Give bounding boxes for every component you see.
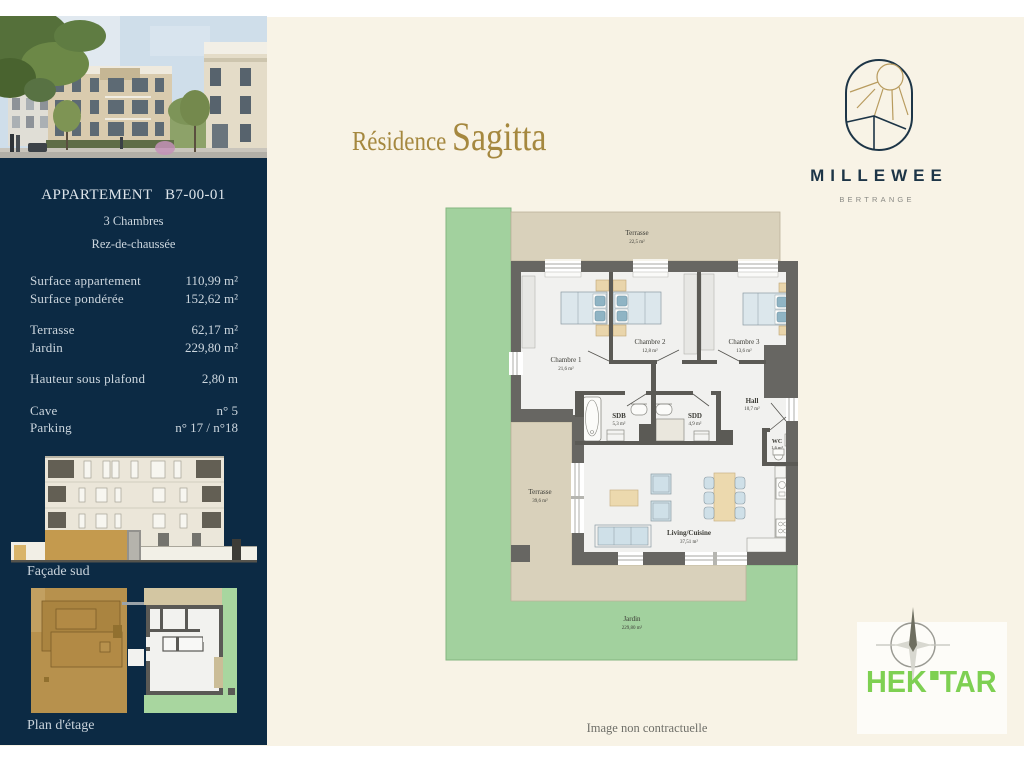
svg-text:21,6 m²: 21,6 m² xyxy=(558,366,574,372)
svg-text:13,6 m²: 13,6 m² xyxy=(736,348,752,354)
svg-text:SDD: SDD xyxy=(688,412,702,420)
svg-text:HEK: HEK xyxy=(866,665,927,699)
svg-text:Jardin: Jardin xyxy=(623,615,641,623)
svg-text:Living/Cuisine: Living/Cuisine xyxy=(667,529,711,537)
svg-text:5,3 m²: 5,3 m² xyxy=(613,421,626,427)
svg-text:BERTRANGE: BERTRANGE xyxy=(839,195,914,204)
svg-text:Chambre 1: Chambre 1 xyxy=(551,356,582,364)
svg-text:MILLEWEE: MILLEWEE xyxy=(810,166,948,185)
svg-text:Hall: Hall xyxy=(746,397,759,405)
svg-text:39,6 m²: 39,6 m² xyxy=(532,498,548,504)
svg-text:Chambre 2: Chambre 2 xyxy=(635,338,666,346)
svg-text:Chambre 3: Chambre 3 xyxy=(729,338,760,346)
svg-text:TAR: TAR xyxy=(939,665,996,699)
svg-text:Terrasse: Terrasse xyxy=(625,229,648,237)
svg-text:12,8 m²: 12,8 m² xyxy=(642,348,658,354)
svg-text:10,7 m²: 10,7 m² xyxy=(744,406,760,412)
svg-text:SDB: SDB xyxy=(612,412,626,420)
svg-text:229,80 m²: 229,80 m² xyxy=(622,625,643,631)
svg-text:4,9 m²: 4,9 m² xyxy=(689,421,702,427)
svg-text:37,51 m²: 37,51 m² xyxy=(680,539,698,545)
svg-text:22,5 m²: 22,5 m² xyxy=(629,239,645,245)
svg-text:Terrasse: Terrasse xyxy=(528,488,551,496)
